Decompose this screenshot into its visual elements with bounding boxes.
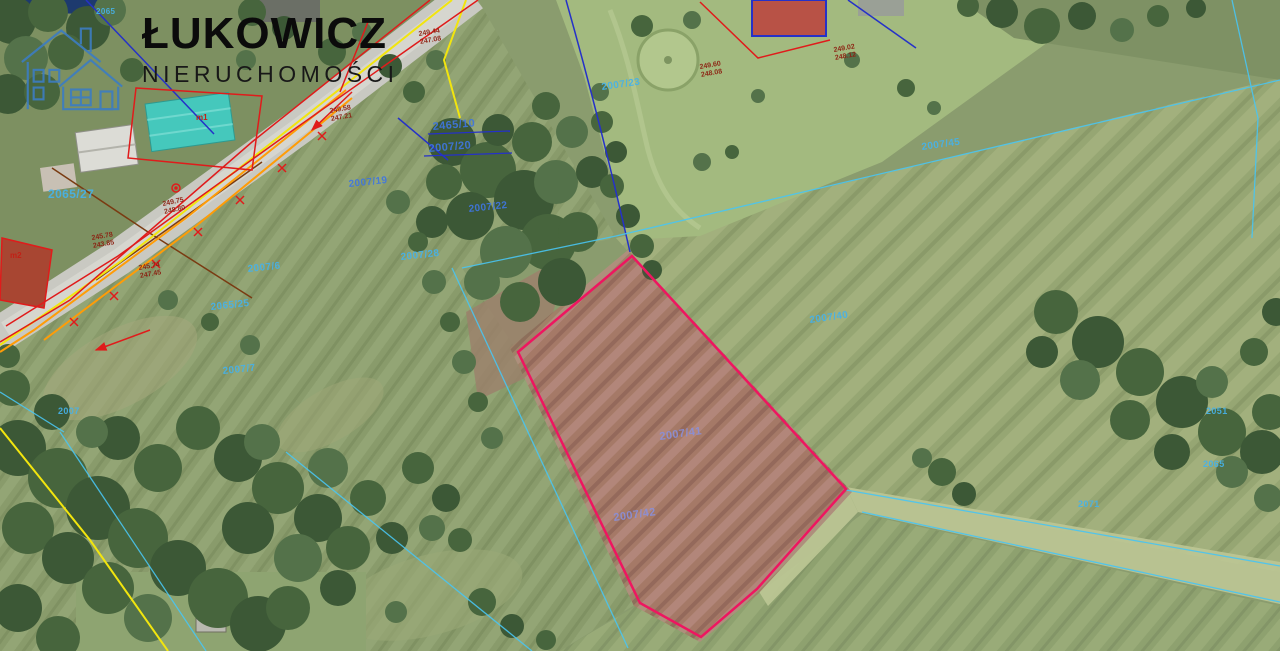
parcel-number-label: 2007 xyxy=(58,406,80,416)
survey-marker-label: m2 xyxy=(10,251,22,260)
parcel-number-label: 2051 xyxy=(1206,406,1228,416)
agency-logo: ŁUKOWICZ NIERUCHOMOŚCI xyxy=(14,12,399,112)
parcel-number-label: 2065 xyxy=(1203,459,1225,469)
house-icon xyxy=(14,12,132,112)
survey-marker-label: m1 xyxy=(196,113,208,122)
listing-map: 2465/102007/202007/232007/192007/222007/… xyxy=(0,0,1280,651)
logo-subtitle: NIERUCHOMOŚCI xyxy=(142,61,399,88)
logo-text: ŁUKOWICZ NIERUCHOMOŚCI xyxy=(142,12,399,88)
parcel-number-label: 2071 xyxy=(1078,499,1100,509)
logo-title: ŁUKOWICZ xyxy=(142,12,399,56)
parcel-number-label: 2065/27 xyxy=(48,187,94,201)
